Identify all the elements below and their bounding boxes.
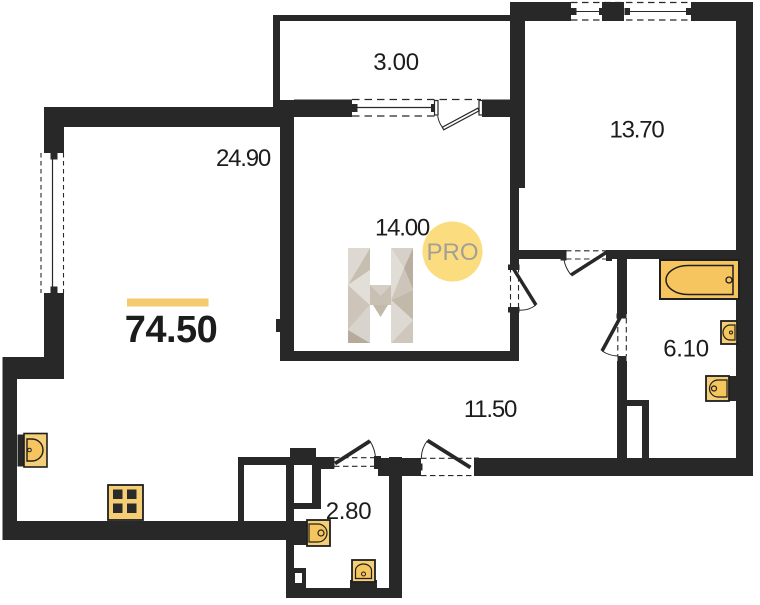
svg-text:3.00: 3.00 [373,49,419,76]
svg-text:6.10: 6.10 [663,336,709,363]
svg-text:2.80: 2.80 [326,498,372,525]
svg-text:14.00: 14.00 [375,215,430,242]
svg-text:74.50: 74.50 [125,309,218,351]
svg-text:PRO: PRO [426,239,478,266]
svg-text:11.50: 11.50 [464,396,517,423]
svg-text:24.90: 24.90 [216,145,271,172]
svg-text:13.70: 13.70 [609,117,664,144]
